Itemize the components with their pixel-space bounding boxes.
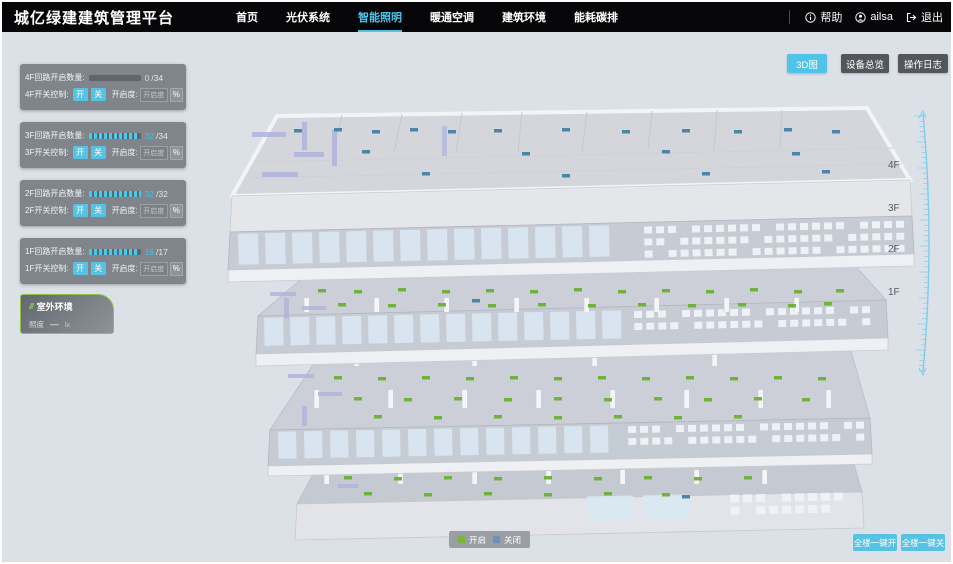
circuit-count-total: /34 xyxy=(156,131,168,141)
illuminance-label: 照度 xyxy=(29,319,44,330)
nav-hvac[interactable]: 暖通空调 xyxy=(430,2,474,32)
dim-input-4f[interactable]: 开启度 xyxy=(140,88,168,102)
outdoor-title: 室外环境 xyxy=(37,300,73,313)
circuit-progress-bar xyxy=(89,249,141,255)
top-navigation-bar: 城亿绿建建筑管理平台 首页 光伏系统 智能照明 暖通空调 建筑环境 能耗碳排 帮… xyxy=(2,2,951,32)
circuit-count-label: 3F回路开启数量: xyxy=(25,130,85,141)
user-name: ailsa xyxy=(870,11,893,23)
help-button[interactable]: 帮助 xyxy=(805,9,842,25)
all-on-button[interactable]: 全楼一键开 xyxy=(853,534,897,551)
topbar-right: 帮助 ailsa 退出 xyxy=(789,9,943,25)
switch-off-button-2f[interactable]: 关 xyxy=(91,204,106,217)
svg-text:4F: 4F xyxy=(888,160,900,171)
dim-apply-button-4f[interactable]: % xyxy=(170,88,183,102)
switch-off-button-3f[interactable]: 关 xyxy=(91,146,106,159)
switch-control-label: 3F开关控制: xyxy=(25,147,69,158)
operation-log-button[interactable]: 操作日志 xyxy=(898,54,948,73)
dim-label: 开启度: xyxy=(112,147,138,158)
svg-text:1F: 1F xyxy=(888,287,900,298)
app-title: 城亿绿建建筑管理平台 xyxy=(14,7,174,28)
illuminance-value: — xyxy=(50,319,59,329)
light-status-legend: 开启 关闭 xyxy=(449,531,530,548)
circuit-progress-bar xyxy=(89,75,141,81)
switch-control-label: 2F开关控制: xyxy=(25,205,69,216)
floor-panel-4f: 4F回路开启数量: 0/34 4F开关控制: 开 关 开启度: 开启度 % xyxy=(20,64,186,110)
circuit-count-value: 32 xyxy=(145,189,154,199)
nav-home[interactable]: 首页 xyxy=(236,2,258,32)
floor-panel-2f: 2F回路开启数量: 32/32 2F开关控制: 开 关 开启度: 开启度 % xyxy=(20,180,186,226)
dim-apply-button-2f[interactable]: % xyxy=(170,204,183,218)
circuit-count-label: 2F回路开启数量: xyxy=(25,188,85,199)
dim-label: 开启度: xyxy=(112,205,138,216)
user-menu[interactable]: ailsa xyxy=(855,11,893,23)
nav-building-env[interactable]: 建筑环境 xyxy=(502,2,546,32)
switch-on-button-2f[interactable]: 开 xyxy=(73,204,88,217)
nav-pv-system[interactable]: 光伏系统 xyxy=(286,2,330,32)
circuit-count-value: 32 xyxy=(145,131,154,141)
dim-label: 开启度: xyxy=(112,89,138,100)
nav-smart-lighting[interactable]: 智能照明 xyxy=(358,2,402,32)
circuit-count-label: 1F回路开启数量: xyxy=(25,246,85,257)
illuminance-unit: lx xyxy=(65,322,70,329)
circuit-progress-bar xyxy=(89,133,141,139)
switch-on-button-1f[interactable]: 开 xyxy=(73,262,88,275)
legend-on-swatch xyxy=(458,536,465,543)
app-window: 城亿绿建建筑管理平台 首页 光伏系统 智能照明 暖通空调 建筑环境 能耗碳排 帮… xyxy=(0,0,953,564)
dim-input-2f[interactable]: 开启度 xyxy=(140,204,168,218)
logout-button[interactable]: 退出 xyxy=(906,9,943,25)
help-icon xyxy=(805,12,816,23)
circuit-count-label: 4F回路开启数量: xyxy=(25,72,85,83)
floor-panel-1f: 1F回路开启数量: 16/17 1F开关控制: 开 关 开启度: 开启度 % xyxy=(20,238,186,284)
logout-icon xyxy=(906,12,917,23)
circuit-count-value: 16 xyxy=(145,247,154,257)
topbar-separator xyxy=(789,10,790,24)
switch-control-label: 1F开关控制: xyxy=(25,263,69,274)
circuit-count-total: /34 xyxy=(151,73,163,83)
outdoor-environment-panel: /// 室外环境 照度 — lx xyxy=(20,294,114,334)
dim-apply-button-3f[interactable]: % xyxy=(170,146,183,160)
legend-off-swatch xyxy=(493,536,500,543)
outdoor-slashes-icon: /// xyxy=(29,302,33,311)
switch-control-label: 4F开关控制: xyxy=(25,89,69,100)
view-3d-button[interactable]: 3D图 xyxy=(787,54,827,73)
switch-off-button-4f[interactable]: 关 xyxy=(91,88,106,101)
dim-input-3f[interactable]: 开启度 xyxy=(140,146,168,160)
circuit-progress-bar xyxy=(89,191,141,197)
legend-off-label: 关闭 xyxy=(504,534,521,546)
floor-panel-3f: 3F回路开启数量: 32/34 3F开关控制: 开 关 开启度: 开启度 % xyxy=(20,122,186,168)
all-off-button[interactable]: 全楼一键关 xyxy=(901,534,945,551)
circuit-count-total: /17 xyxy=(156,247,168,257)
dim-label: 开启度: xyxy=(112,263,138,274)
circuit-count-value: 0 xyxy=(145,73,150,83)
circuit-count-total: /32 xyxy=(156,189,168,199)
switch-on-button-3f[interactable]: 开 xyxy=(73,146,88,159)
switch-off-button-1f[interactable]: 关 xyxy=(91,262,106,275)
svg-text:2F: 2F xyxy=(888,244,900,255)
device-overview-button[interactable]: 设备总览 xyxy=(841,54,889,73)
switch-on-button-4f[interactable]: 开 xyxy=(73,88,88,101)
dim-input-1f[interactable]: 开启度 xyxy=(140,262,168,276)
legend-on-label: 开启 xyxy=(469,534,486,546)
dim-apply-button-1f[interactable]: % xyxy=(170,262,183,276)
nav-energy-carbon[interactable]: 能耗碳排 xyxy=(574,2,618,32)
svg-text:3F: 3F xyxy=(888,203,900,214)
user-icon xyxy=(855,12,866,23)
main-nav: 首页 光伏系统 智能照明 暖通空调 建筑环境 能耗碳排 xyxy=(236,2,618,32)
building-3d-view[interactable]: 4F3F2F1F xyxy=(2,32,951,562)
